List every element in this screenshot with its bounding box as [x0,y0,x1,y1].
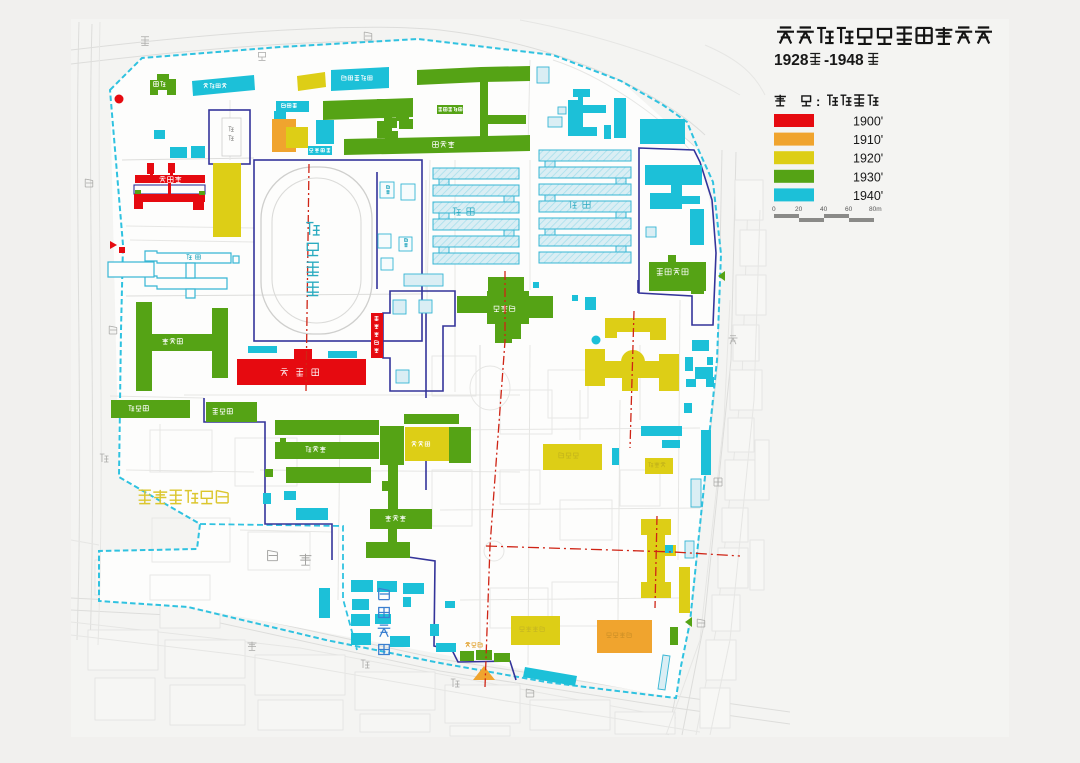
svg-text:20: 20 [795,206,803,213]
svg-text:0: 0 [772,206,776,213]
svg-text:1920': 1920' [853,152,883,166]
svg-text:-1948: -1948 [824,52,864,69]
svg-text:80m: 80m [869,206,882,213]
svg-text:1910': 1910' [853,133,883,147]
svg-text:40: 40 [820,206,828,213]
svg-text:1940': 1940' [853,189,883,203]
svg-text::: : [816,94,820,109]
svg-text:1930': 1930' [853,170,883,184]
svg-text:1928: 1928 [774,52,809,69]
svg-text:60: 60 [845,206,853,213]
svg-text:1900': 1900' [853,115,883,129]
